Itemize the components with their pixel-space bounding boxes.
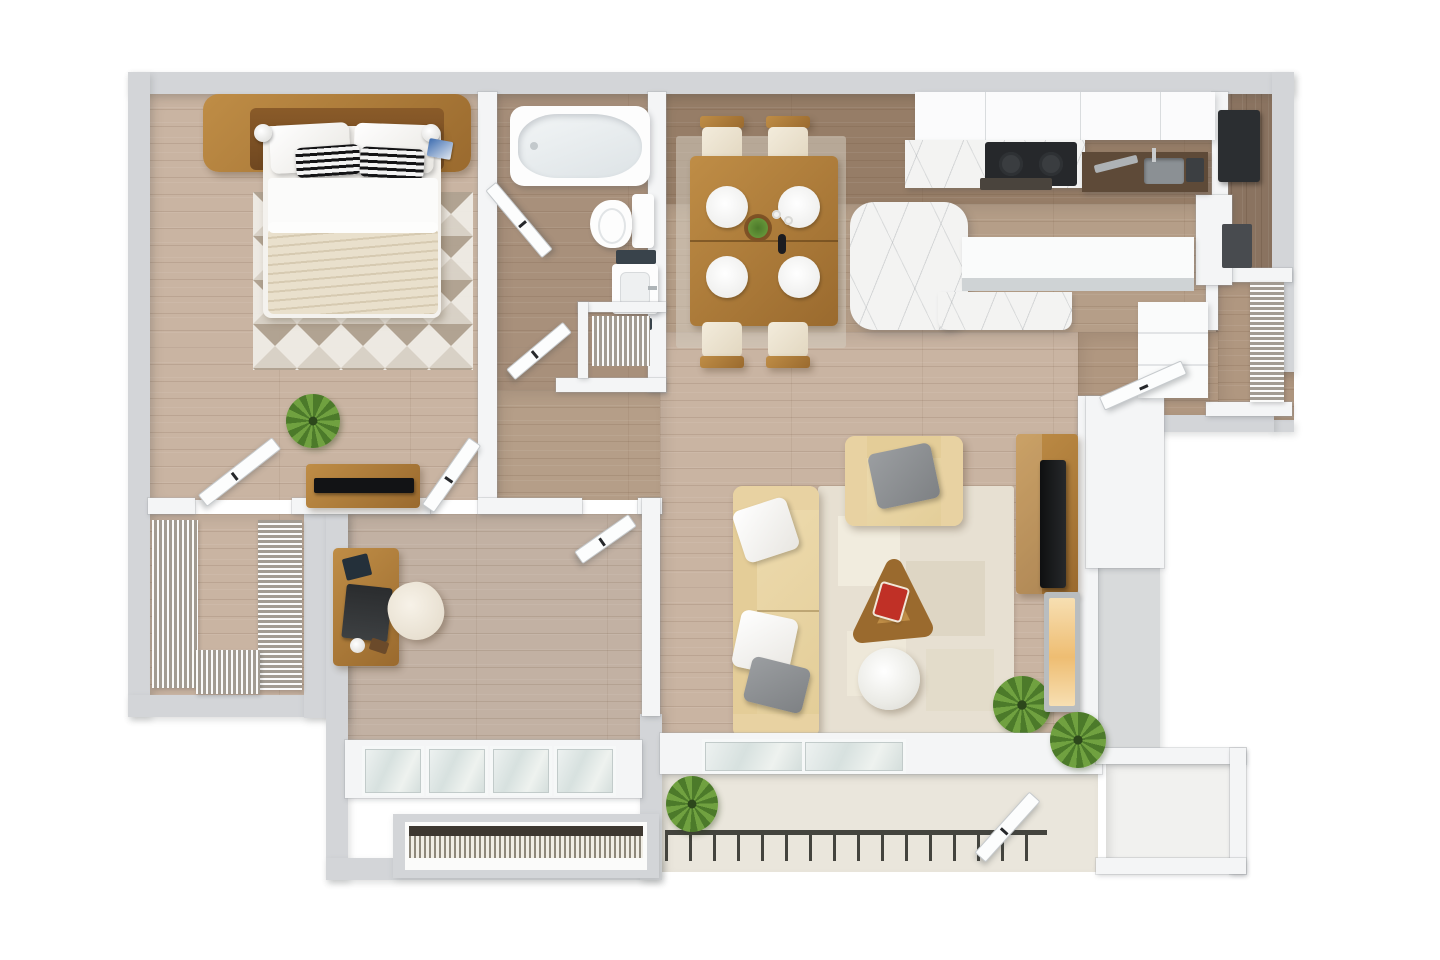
storage-closet-wall-bottom [1096, 858, 1246, 874]
wall-top [128, 72, 1294, 94]
linen-closet-wire-shelf [592, 316, 650, 366]
oven-front [980, 178, 1052, 190]
wall-entry-stub [1272, 420, 1294, 432]
bar-counter-edge [962, 278, 1194, 291]
office-vent-frame [393, 814, 659, 878]
office-window-pane-4 [554, 746, 616, 796]
cabinet-divider-2 [1080, 92, 1081, 140]
glass-1 [772, 210, 781, 219]
sofa-cushion-seam [757, 610, 819, 612]
sink-basin [620, 272, 650, 306]
office-mug [350, 638, 365, 653]
kitchen-counter-dark [1082, 152, 1208, 192]
linen-closet-wall-top [578, 302, 666, 312]
bedroom-tv [314, 478, 414, 493]
plate-3 [706, 256, 748, 298]
chair-back [766, 356, 810, 368]
nightstand-book [427, 138, 454, 160]
wall-bathroom-bottom [556, 378, 666, 392]
pantry-shelf-line-1 [1138, 332, 1208, 334]
chair-back [700, 356, 744, 368]
armchair-arm-left [845, 436, 867, 526]
dining-chair-bottom-left [700, 320, 744, 368]
toilet-seat [598, 208, 626, 244]
wall-office-right-upper [642, 498, 660, 716]
pouf [858, 648, 920, 710]
cutting-board [1094, 155, 1139, 173]
living-plant [993, 676, 1051, 734]
wall-south-seg-a [148, 498, 195, 514]
bathtub [510, 106, 650, 186]
kitchen-upper-cabinets [915, 92, 1215, 140]
office-vent-slot [409, 826, 643, 836]
office-window-pane-1 [362, 746, 424, 796]
burner-right [1039, 152, 1063, 176]
sink-faucet [648, 286, 657, 290]
glass-2 [784, 216, 793, 225]
kitchen-faucet [1152, 148, 1156, 162]
table-lamp-left [254, 124, 272, 142]
exterior-utility-block [1096, 566, 1160, 756]
storage-closet-wall-top [1096, 748, 1246, 764]
hall-floor [497, 390, 662, 500]
bed-blanket-fold [268, 222, 438, 233]
chair-seat [702, 322, 742, 357]
coat-closet-wire-shelf [1250, 282, 1284, 402]
tv-console-step [1016, 434, 1042, 594]
closet-wire-shelf-right [258, 520, 302, 690]
wall-left [128, 72, 150, 717]
dining-chair-bottom-right [766, 320, 810, 368]
linen-closet-wall-left [578, 302, 588, 378]
office-laptop [341, 584, 392, 643]
plate-4 [778, 256, 820, 298]
striped-pillow-left [295, 144, 361, 178]
striped-pillow-right [359, 146, 424, 179]
burner-left [999, 152, 1023, 176]
utility-box [1222, 224, 1252, 268]
bed-blanket [268, 228, 438, 314]
kitchen-sink [1144, 158, 1184, 184]
cabinet-divider-3 [1160, 92, 1161, 140]
plate-1 [706, 186, 748, 228]
sliding-glass-panel-2 [802, 739, 906, 774]
office-window-pane-3 [490, 746, 552, 796]
wine-bottle [778, 234, 786, 254]
bedroom-plant [286, 394, 340, 448]
wall-entry-bump [1086, 396, 1164, 568]
water-heater [1218, 110, 1260, 182]
closet-wire-shelf-left [152, 520, 198, 688]
office-hvac-grille [409, 836, 643, 858]
toilet-tank [632, 194, 654, 248]
wall-coat-closet-bottom [1206, 402, 1292, 416]
toilet-bowl [590, 200, 632, 248]
armchair-arm-right [941, 436, 963, 526]
sliding-glass-panel-1 [702, 739, 806, 774]
balcony-plant-right [1050, 712, 1106, 768]
fireplace-glow [1049, 598, 1075, 706]
floor-plan [0, 0, 1440, 960]
balcony-plant-left [666, 776, 718, 832]
cabinet-divider-1 [985, 92, 986, 140]
wall-south-seg-c [478, 498, 582, 514]
storage-closet-floor [1106, 762, 1232, 860]
fireplace-frame [1044, 592, 1080, 712]
bathtub-drain [530, 142, 538, 150]
storage-closet-wall-right [1230, 748, 1246, 874]
centerpiece-plant [748, 218, 768, 238]
office-window-band [345, 740, 642, 798]
counter-dark-box [1186, 158, 1204, 182]
centerpiece-bowl [744, 214, 772, 242]
closet-wire-shelf-bottom [196, 650, 260, 694]
bath-towel-upper [616, 250, 656, 264]
wall-bedroom-right [478, 92, 497, 498]
living-tv [1040, 460, 1066, 588]
office-window-pane-2 [426, 746, 488, 796]
bar-counter-return [938, 292, 1072, 330]
chair-seat [768, 322, 808, 357]
rug-patch-4 [926, 649, 995, 712]
dining-table [690, 156, 838, 326]
wall-closet-bottom [128, 695, 328, 717]
